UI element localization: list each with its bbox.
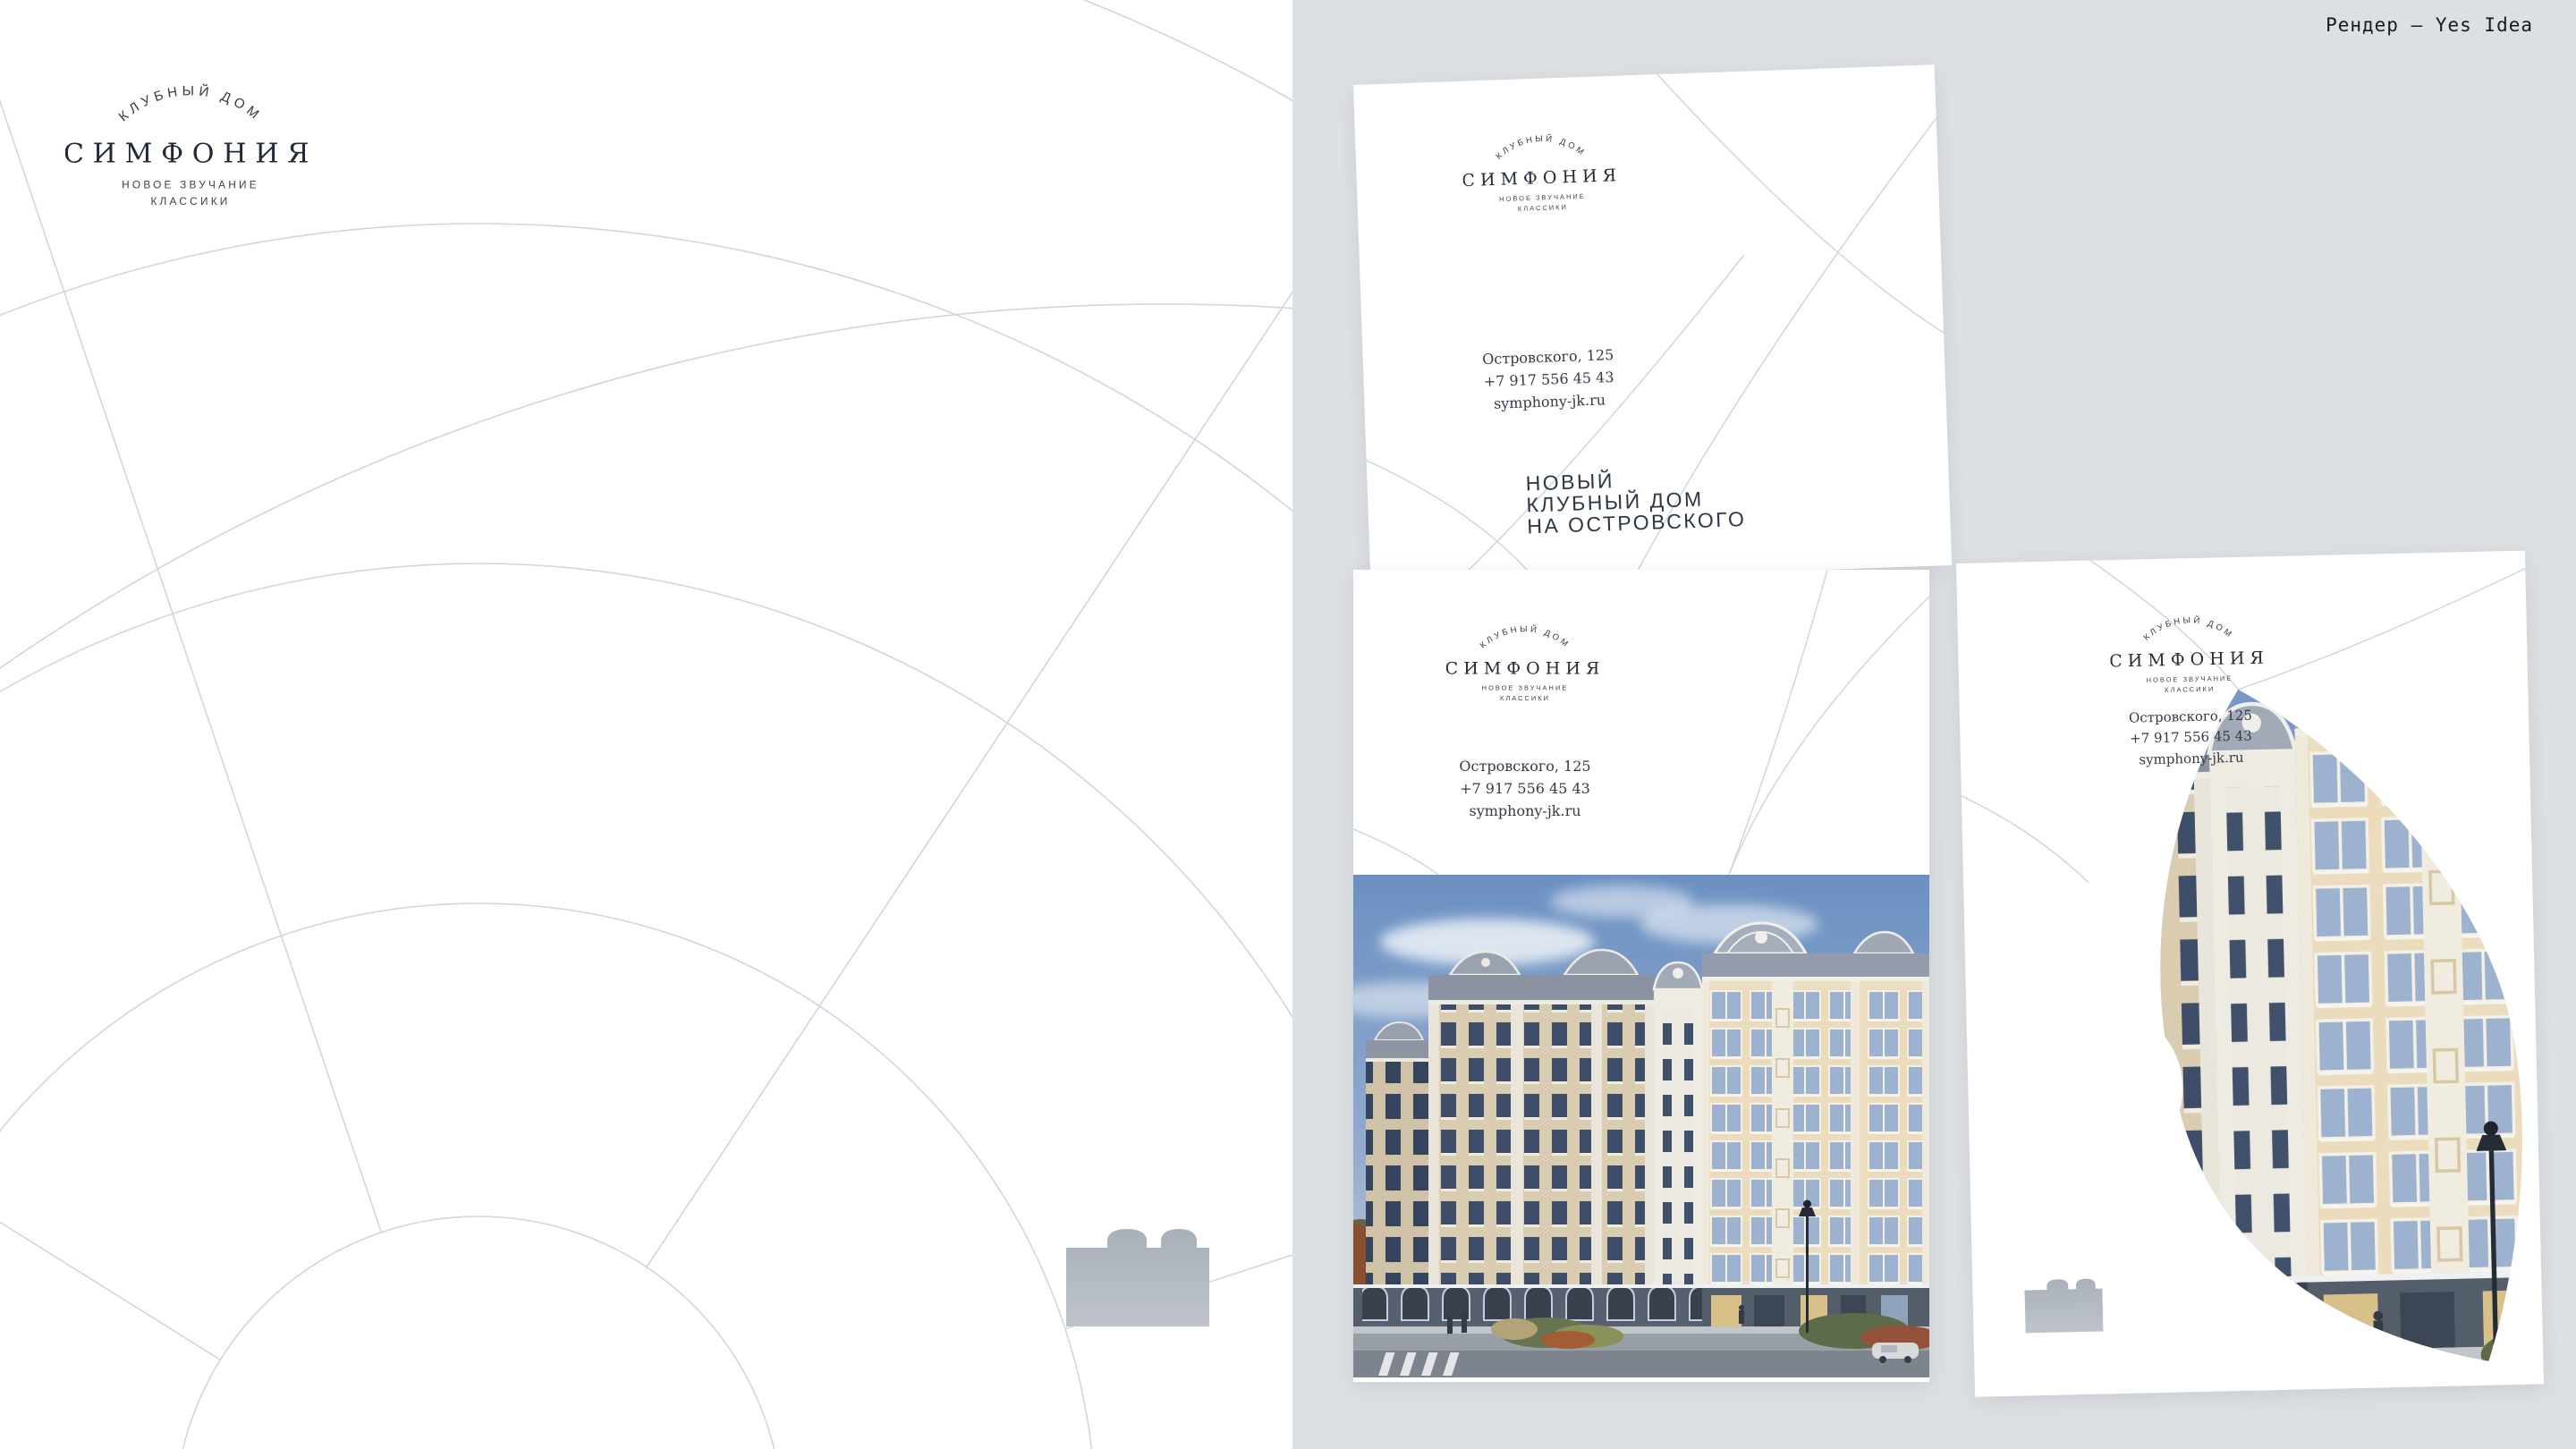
letterhead-sheet-mockup: КЛУБНЫЙ ДОМ СИМФОНИЯ НОВОЕ ЗВУЧАНИЕ КЛАС… (1353, 64, 1952, 585)
building-render-photo (1353, 875, 1929, 1377)
card-arc-pattern (1353, 570, 1929, 875)
brand-tagline-2: КЛАССИКИ (2165, 685, 2215, 694)
brand-logo: КЛУБНЫЙ ДОМ СИМФОНИЯ НОВОЕ ЗВУЧАНИЕ КЛАС… (65, 47, 316, 230)
contact-website: symphony-jk.ru (2130, 747, 2253, 770)
brand-name: СИМФОНИЯ (2109, 648, 2269, 672)
brand-logo: КЛУБНЫЙ ДОМ СИМФОНИЯ НОВОЕ ЗВУЧАНИЕ КЛАС… (1446, 601, 1604, 716)
brand-arc-label: КЛУБНЫЙ ДОМ (1494, 131, 1589, 162)
brand-tagline-1: НОВОЕ ЗВУЧАНИЕ (122, 178, 259, 191)
contact-block: Островского, 125 +7 917 556 45 43 sympho… (1482, 344, 1616, 415)
render-credit-label: Рендер — Yes Idea (2326, 14, 2533, 36)
brand-tagline-2: КЛАССИКИ (1518, 203, 1568, 213)
contact-phone: +7 917 556 45 43 (2129, 726, 2252, 750)
brand-arc-label: КЛУБНЫЙ ДОМ (1479, 623, 1572, 650)
building-silhouette-graphic (2024, 1276, 2103, 1335)
brand-tagline-2: КЛАССИКИ (150, 195, 230, 208)
folder-front-mockup: КЛУБНЫЙ ДОМ СИМФОНИЯ НОВОЕ ЗВУЧАНИЕ КЛАС… (1353, 570, 1929, 1382)
brand-name: СИМФОНИЯ (1462, 165, 1622, 191)
brand-tagline-2: КЛАССИКИ (1500, 694, 1550, 702)
brand-tagline-1: НОВОЕ ЗВУЧАНИЕ (2147, 674, 2233, 684)
contact-phone: +7 917 556 45 43 (1459, 778, 1590, 801)
contact-block: Островского, 125 +7 917 556 45 43 sympho… (1459, 756, 1590, 822)
left-brand-panel: КЛУБНЫЙ ДОМ СИМФОНИЯ НОВОЕ ЗВУЧАНИЕ КЛАС… (0, 0, 1292, 1449)
contact-website: symphony-jk.ru (1484, 389, 1616, 416)
contact-website: symphony-jk.ru (1459, 801, 1590, 823)
brand-logo: КЛУБНЫЙ ДОМ СИМФОНИЯ НОВОЕ ЗВУЧАНИЕ КЛАС… (2109, 590, 2269, 709)
brand-tagline-1: НОВОЕ ЗВУЧАНИЕ (1499, 192, 1586, 203)
circle-cutout (2016, 1004, 2184, 1172)
contact-block: Островского, 125 +7 917 556 45 43 sympho… (2129, 706, 2253, 771)
fan-sheet-mockup: КЛУБНЫЙ ДОМ СИМФОНИЯ НОВОЕ ЗВУЧАНИЕ КЛАС… (1956, 551, 2544, 1397)
letterhead-headline: НОВЫЙ КЛУБНЫЙ ДОМ НА ОСТРОВСКОГО (1525, 465, 1746, 538)
brand-logo: КЛУБНЫЙ ДОМ СИМФОНИЯ НОВОЕ ЗВУЧАНИЕ КЛАС… (1461, 108, 1622, 229)
contact-address: Островского, 125 (2129, 706, 2252, 729)
contact-address: Островского, 125 (1459, 756, 1590, 778)
brand-name: СИМФОНИЯ (65, 138, 316, 169)
building-silhouette-graphic (1066, 1226, 1209, 1326)
brand-name: СИМФОНИЯ (1446, 658, 1604, 678)
brand-arc-label: КЛУБНЫЙ ДОМ (2141, 614, 2235, 642)
brand-arc-label: КЛУБНЫЙ ДОМ (116, 83, 266, 125)
brand-tagline-1: НОВОЕ ЗВУЧАНИЕ (1482, 684, 1569, 692)
